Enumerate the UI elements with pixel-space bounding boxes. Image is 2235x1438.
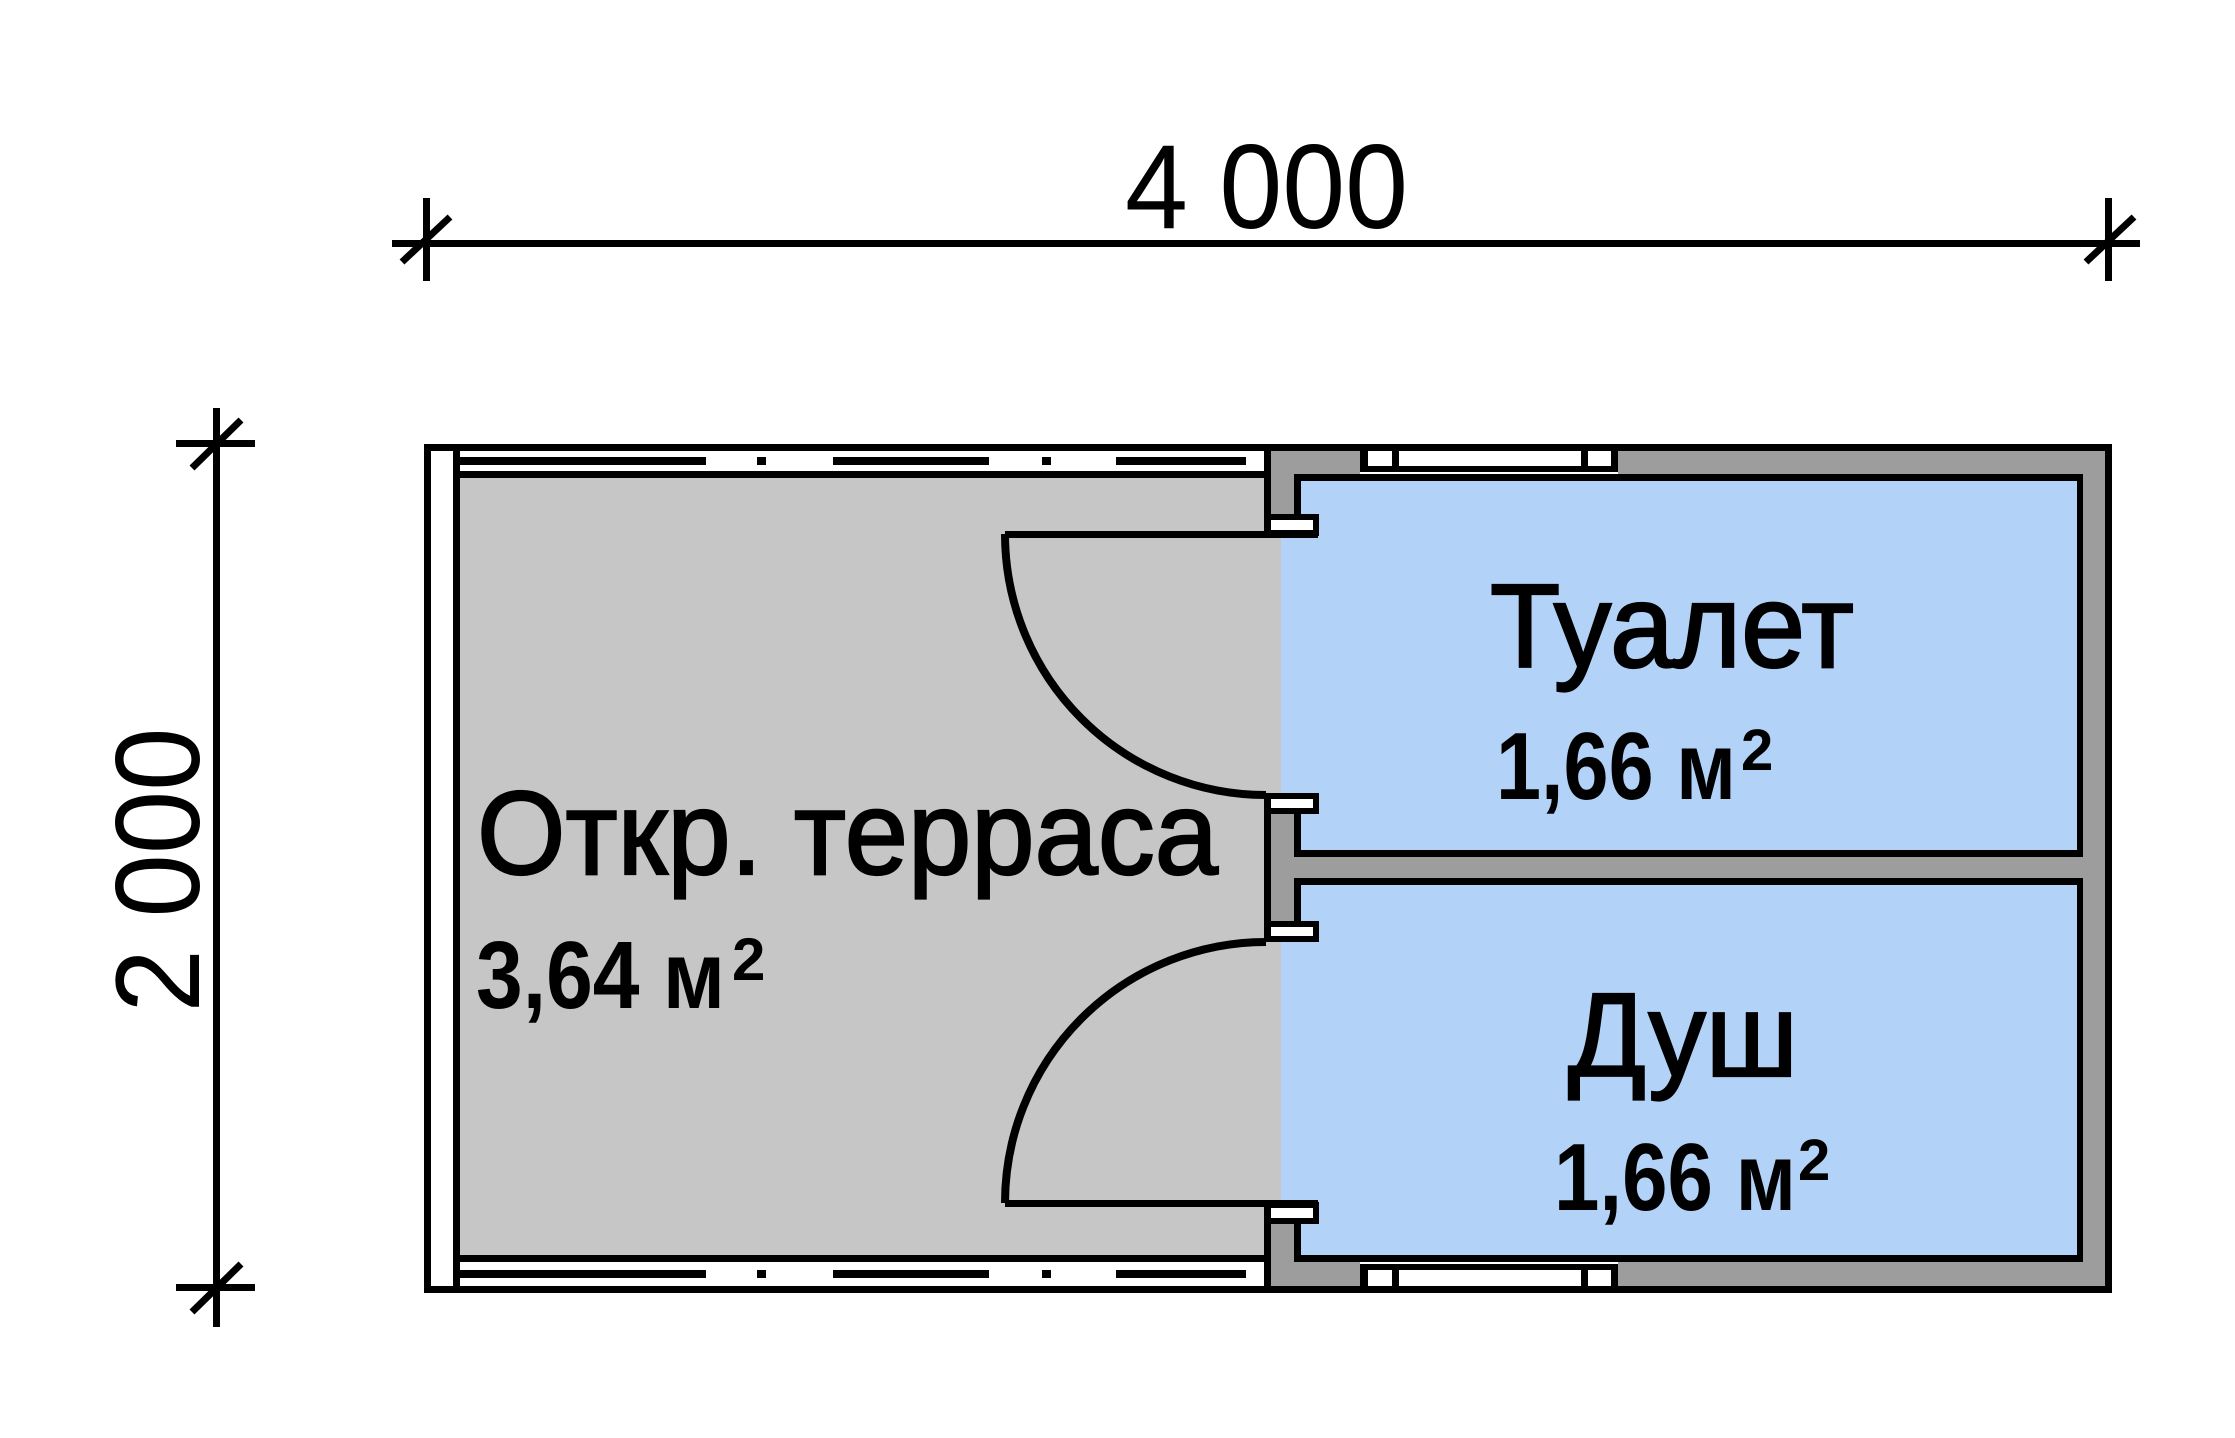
svg-text:1,66 м: 1,66 м — [1496, 713, 1736, 820]
svg-text:Душ: Душ — [1568, 969, 1798, 1102]
svg-text:2: 2 — [1741, 718, 1773, 783]
svg-text:Туалет: Туалет — [1490, 560, 1854, 693]
svg-text:2 000: 2 000 — [91, 728, 225, 1013]
svg-text:Откр. терраса: Откр. терраса — [477, 767, 1219, 900]
svg-text:3,64 м: 3,64 м — [476, 922, 725, 1029]
svg-text:2: 2 — [1798, 1128, 1830, 1193]
svg-text:4 000: 4 000 — [1125, 120, 1408, 254]
svg-text:1,66 м: 1,66 м — [1554, 1124, 1796, 1231]
svg-text:2: 2 — [732, 926, 765, 993]
